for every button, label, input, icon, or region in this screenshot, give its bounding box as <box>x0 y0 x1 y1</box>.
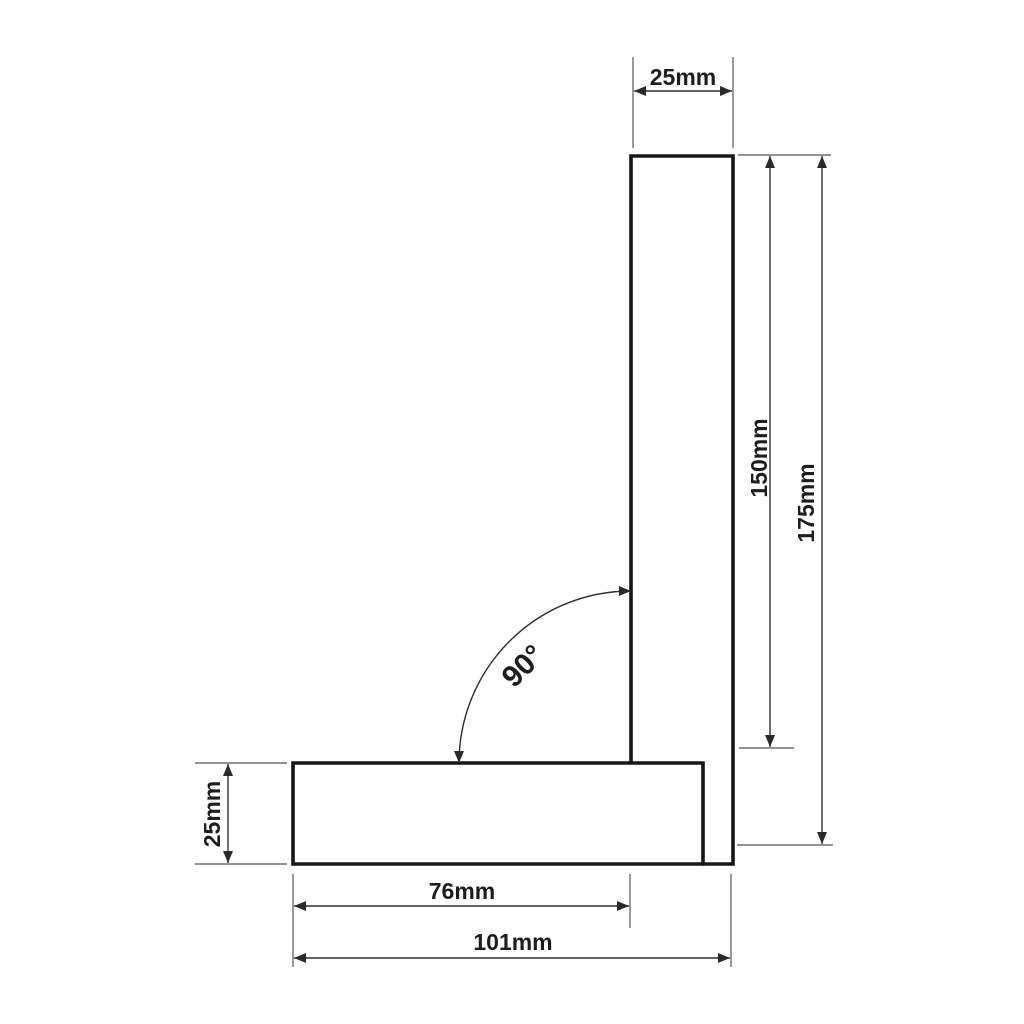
square-outline <box>293 156 733 864</box>
overall-height-label: 175mm <box>793 463 819 542</box>
blade-outline <box>631 156 733 864</box>
base-overall-length-label: 101mm <box>473 929 552 955</box>
dimension-blade-width: 25mm <box>633 57 733 148</box>
dimension-base-overall-length: 101mm <box>294 874 731 967</box>
dimension-base-thickness: 25mm <box>195 763 287 864</box>
dimension-blade-length: 150mm <box>738 155 831 748</box>
dimension-overall-height: 175mm <box>737 156 833 845</box>
dimension-base-inner-length: 76mm <box>293 874 630 967</box>
blade-width-label: 25mm <box>650 64 716 90</box>
drawing-canvas: 25mm 150mm 175mm 25mm 76mm <box>0 0 1024 1024</box>
blade-length-label: 150mm <box>746 418 772 497</box>
dimension-angle: 90° <box>459 591 631 763</box>
base-outline <box>293 763 703 864</box>
base-inner-length-label: 76mm <box>429 878 495 904</box>
technical-drawing-svg: 25mm 150mm 175mm 25mm 76mm <box>0 0 1024 1024</box>
base-thickness-label: 25mm <box>199 781 225 847</box>
angle-arc <box>459 591 631 763</box>
